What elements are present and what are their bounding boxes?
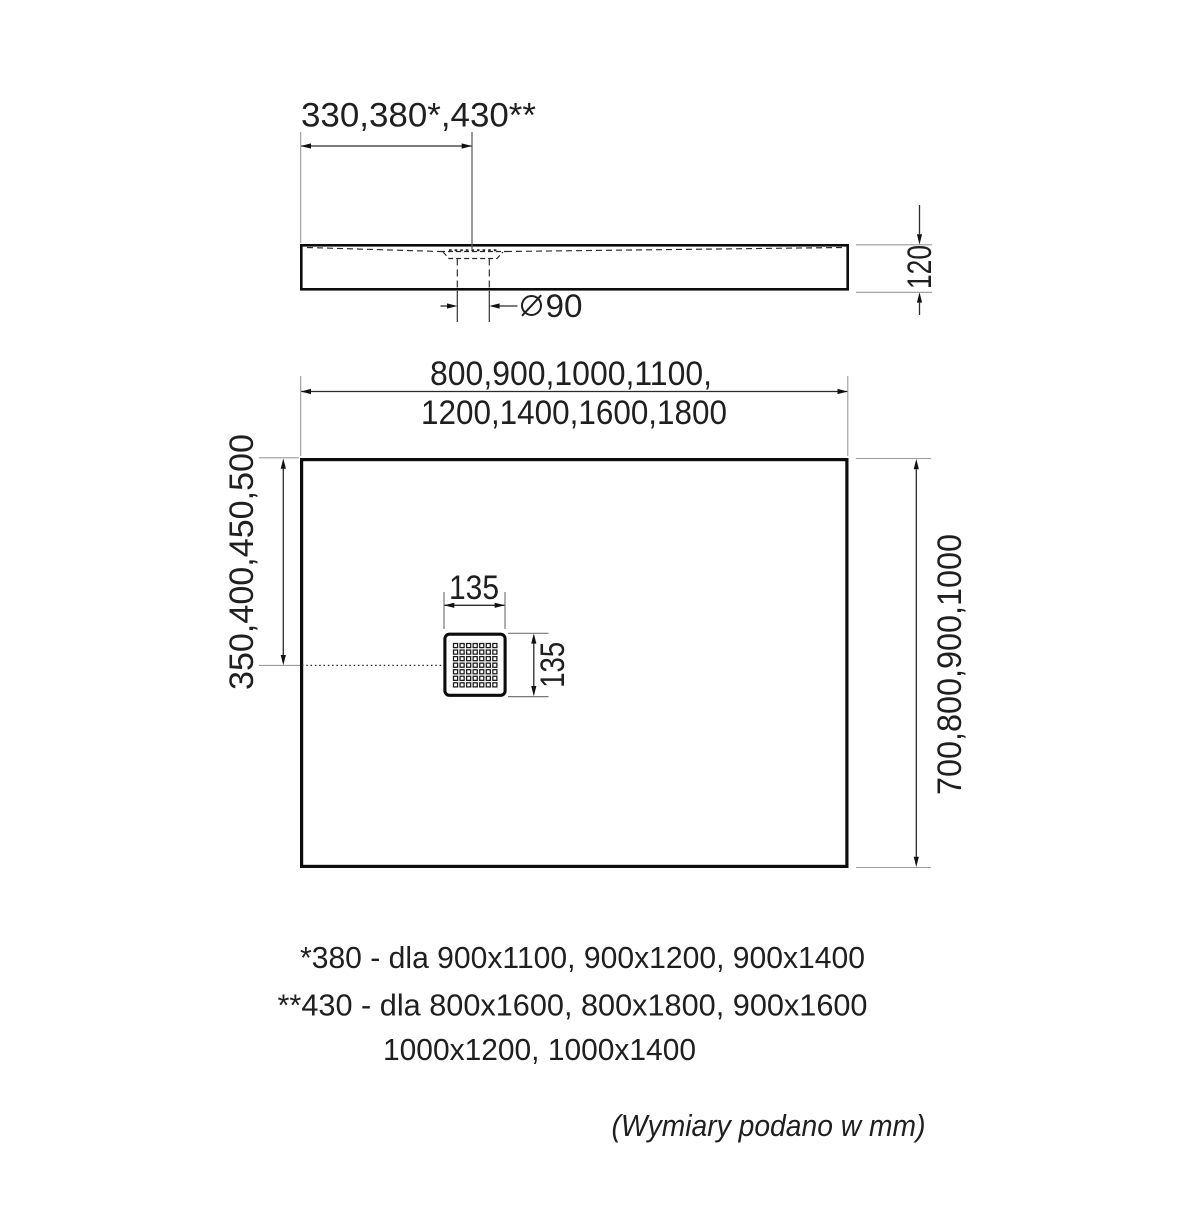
svg-text:135: 135	[534, 642, 572, 688]
svg-text:120: 120	[901, 245, 939, 289]
svg-text:90: 90	[546, 288, 583, 324]
svg-text:*380 - dla 900x1100, 900x1200,: *380 - dla 900x1100, 900x1200, 900x1400	[300, 941, 865, 975]
svg-text:800,900,1000,1100,: 800,900,1000,1100,	[430, 355, 712, 393]
svg-text:135: 135	[449, 569, 499, 607]
svg-text:**430 - dla 800x1600, 800x1800: **430 - dla 800x1600, 800x1800, 900x1600	[278, 989, 868, 1023]
svg-text:330,380*,430**: 330,380*,430**	[301, 97, 536, 135]
svg-text:(Wymiary podano w mm): (Wymiary podano w mm)	[612, 1108, 926, 1143]
svg-text:1200,1400,1600,1800: 1200,1400,1600,1800	[421, 394, 727, 432]
svg-text:350,400,450,500: 350,400,450,500	[223, 434, 261, 690]
svg-text:700,800,900,1000: 700,800,900,1000	[931, 534, 969, 795]
svg-text:1000x1200, 1000x1400: 1000x1200, 1000x1400	[383, 1033, 696, 1067]
